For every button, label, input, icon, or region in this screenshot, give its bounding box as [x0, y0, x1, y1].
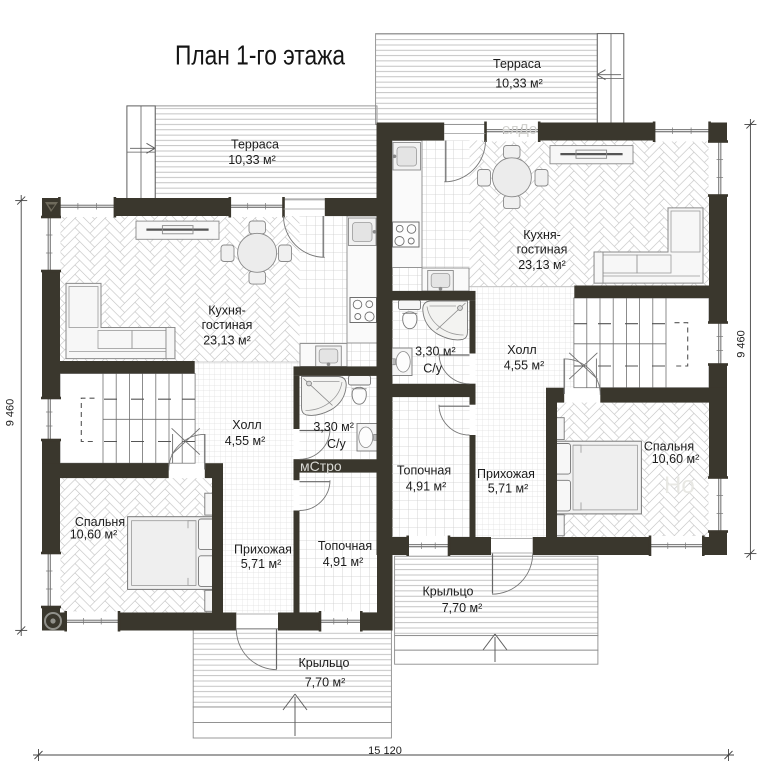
- svg-text:С/у: С/у: [423, 362, 443, 376]
- svg-text:Терраса: Терраса: [231, 138, 279, 152]
- svg-text:гостиная: гостиная: [517, 243, 568, 257]
- svg-text:Топочная: Топочная: [397, 464, 451, 478]
- svg-text:9 460: 9 460: [736, 330, 748, 358]
- svg-text:мСтро: мСтро: [300, 458, 342, 474]
- svg-text:Кухня-: Кухня-: [523, 228, 561, 242]
- svg-text:23,13 м²: 23,13 м²: [518, 258, 566, 272]
- svg-text:4,91 м²: 4,91 м²: [323, 555, 364, 569]
- svg-text:гостиная: гостиная: [202, 318, 253, 332]
- svg-text:9 460: 9 460: [5, 399, 17, 427]
- svg-text:Топочная: Топочная: [318, 539, 372, 553]
- svg-text:10,33 м²: 10,33 м²: [228, 153, 276, 167]
- svg-text:7,70 м²: 7,70 м²: [442, 601, 483, 615]
- svg-text:5,71 м²: 5,71 м²: [488, 482, 529, 496]
- svg-text:4,55 м²: 4,55 м²: [225, 434, 266, 448]
- svg-text:10,33 м²: 10,33 м²: [495, 77, 543, 91]
- svg-text:15 120: 15 120: [368, 745, 402, 757]
- svg-text:23,13 м²: 23,13 м²: [203, 334, 251, 348]
- svg-text:10,60 м²: 10,60 м²: [70, 528, 118, 542]
- svg-text:елДо: елДо: [502, 121, 537, 138]
- svg-text:4,55 м²: 4,55 м²: [504, 359, 545, 373]
- svg-text:4,91 м²: 4,91 м²: [406, 480, 447, 494]
- svg-text:Крыльцо: Крыльцо: [299, 656, 350, 670]
- svg-text:5,71 м²: 5,71 м²: [241, 557, 282, 571]
- svg-text:Терраса: Терраса: [493, 57, 541, 71]
- svg-text:Но: Но: [664, 472, 695, 499]
- svg-text:10,60 м²: 10,60 м²: [652, 452, 700, 466]
- svg-text:Холл: Холл: [232, 418, 261, 432]
- svg-text:Крыльцо: Крыльцо: [423, 585, 474, 599]
- svg-text:План 1-го этажа: План 1-го этажа: [175, 40, 346, 71]
- svg-text:7,70 м²: 7,70 м²: [305, 676, 346, 690]
- svg-text:Кухня-: Кухня-: [208, 304, 246, 318]
- svg-text:3,30 м²: 3,30 м²: [313, 420, 354, 434]
- svg-text:Холл: Холл: [507, 343, 536, 357]
- svg-text:Прихожая: Прихожая: [234, 543, 292, 557]
- svg-text:3,30 м²: 3,30 м²: [415, 345, 456, 359]
- svg-text:Прихожая: Прихожая: [477, 467, 535, 481]
- svg-text:С/у: С/у: [327, 437, 347, 451]
